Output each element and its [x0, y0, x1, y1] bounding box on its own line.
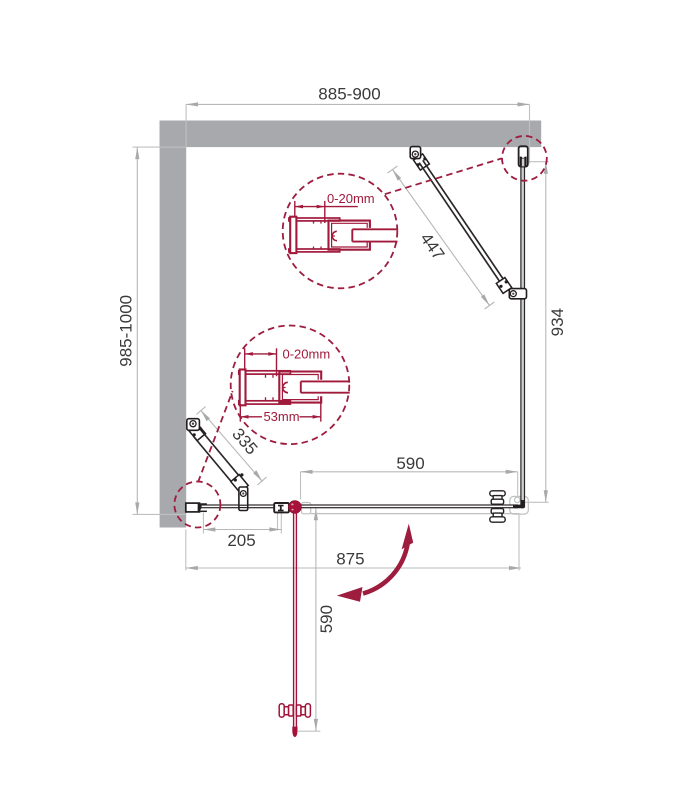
svg-text:985-1000: 985-1000: [117, 295, 136, 367]
svg-text:53mm: 53mm: [263, 409, 299, 424]
svg-text:590: 590: [396, 454, 424, 473]
svg-text:0-20mm: 0-20mm: [283, 347, 331, 362]
svg-text:590: 590: [317, 605, 336, 633]
svg-text:885-900: 885-900: [318, 85, 380, 104]
svg-text:934: 934: [548, 308, 567, 336]
svg-text:205: 205: [227, 531, 255, 550]
svg-text:0-20mm: 0-20mm: [327, 191, 375, 206]
svg-text:875: 875: [336, 549, 364, 568]
